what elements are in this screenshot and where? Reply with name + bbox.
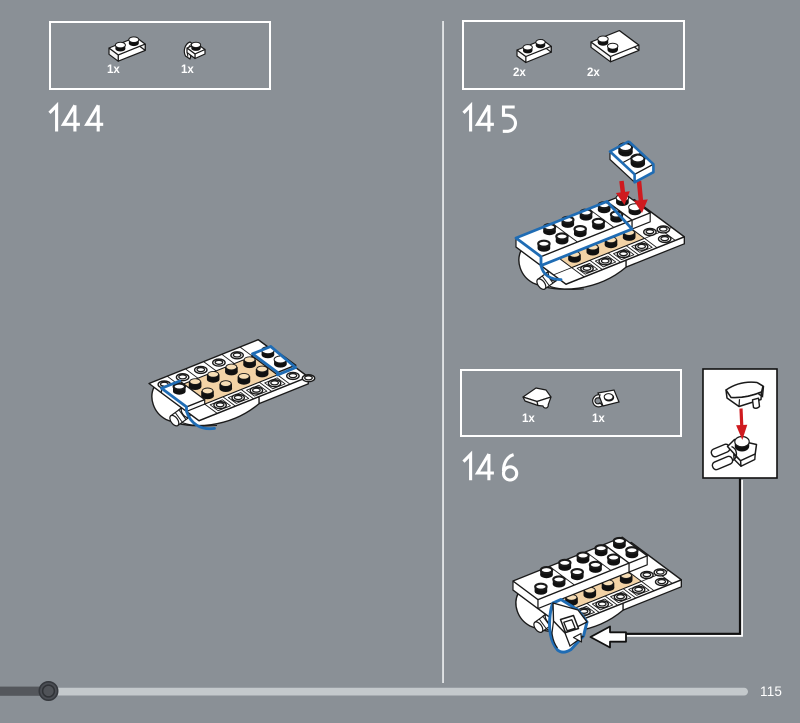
svg-text:1x: 1x [592,413,605,425]
svg-text:1x: 1x [181,64,194,76]
svg-text:115: 115 [760,684,782,699]
svg-text:2x: 2x [513,67,526,79]
svg-text:2x: 2x [587,67,600,79]
svg-text:1x: 1x [522,413,535,425]
svg-text:1x: 1x [107,64,120,76]
